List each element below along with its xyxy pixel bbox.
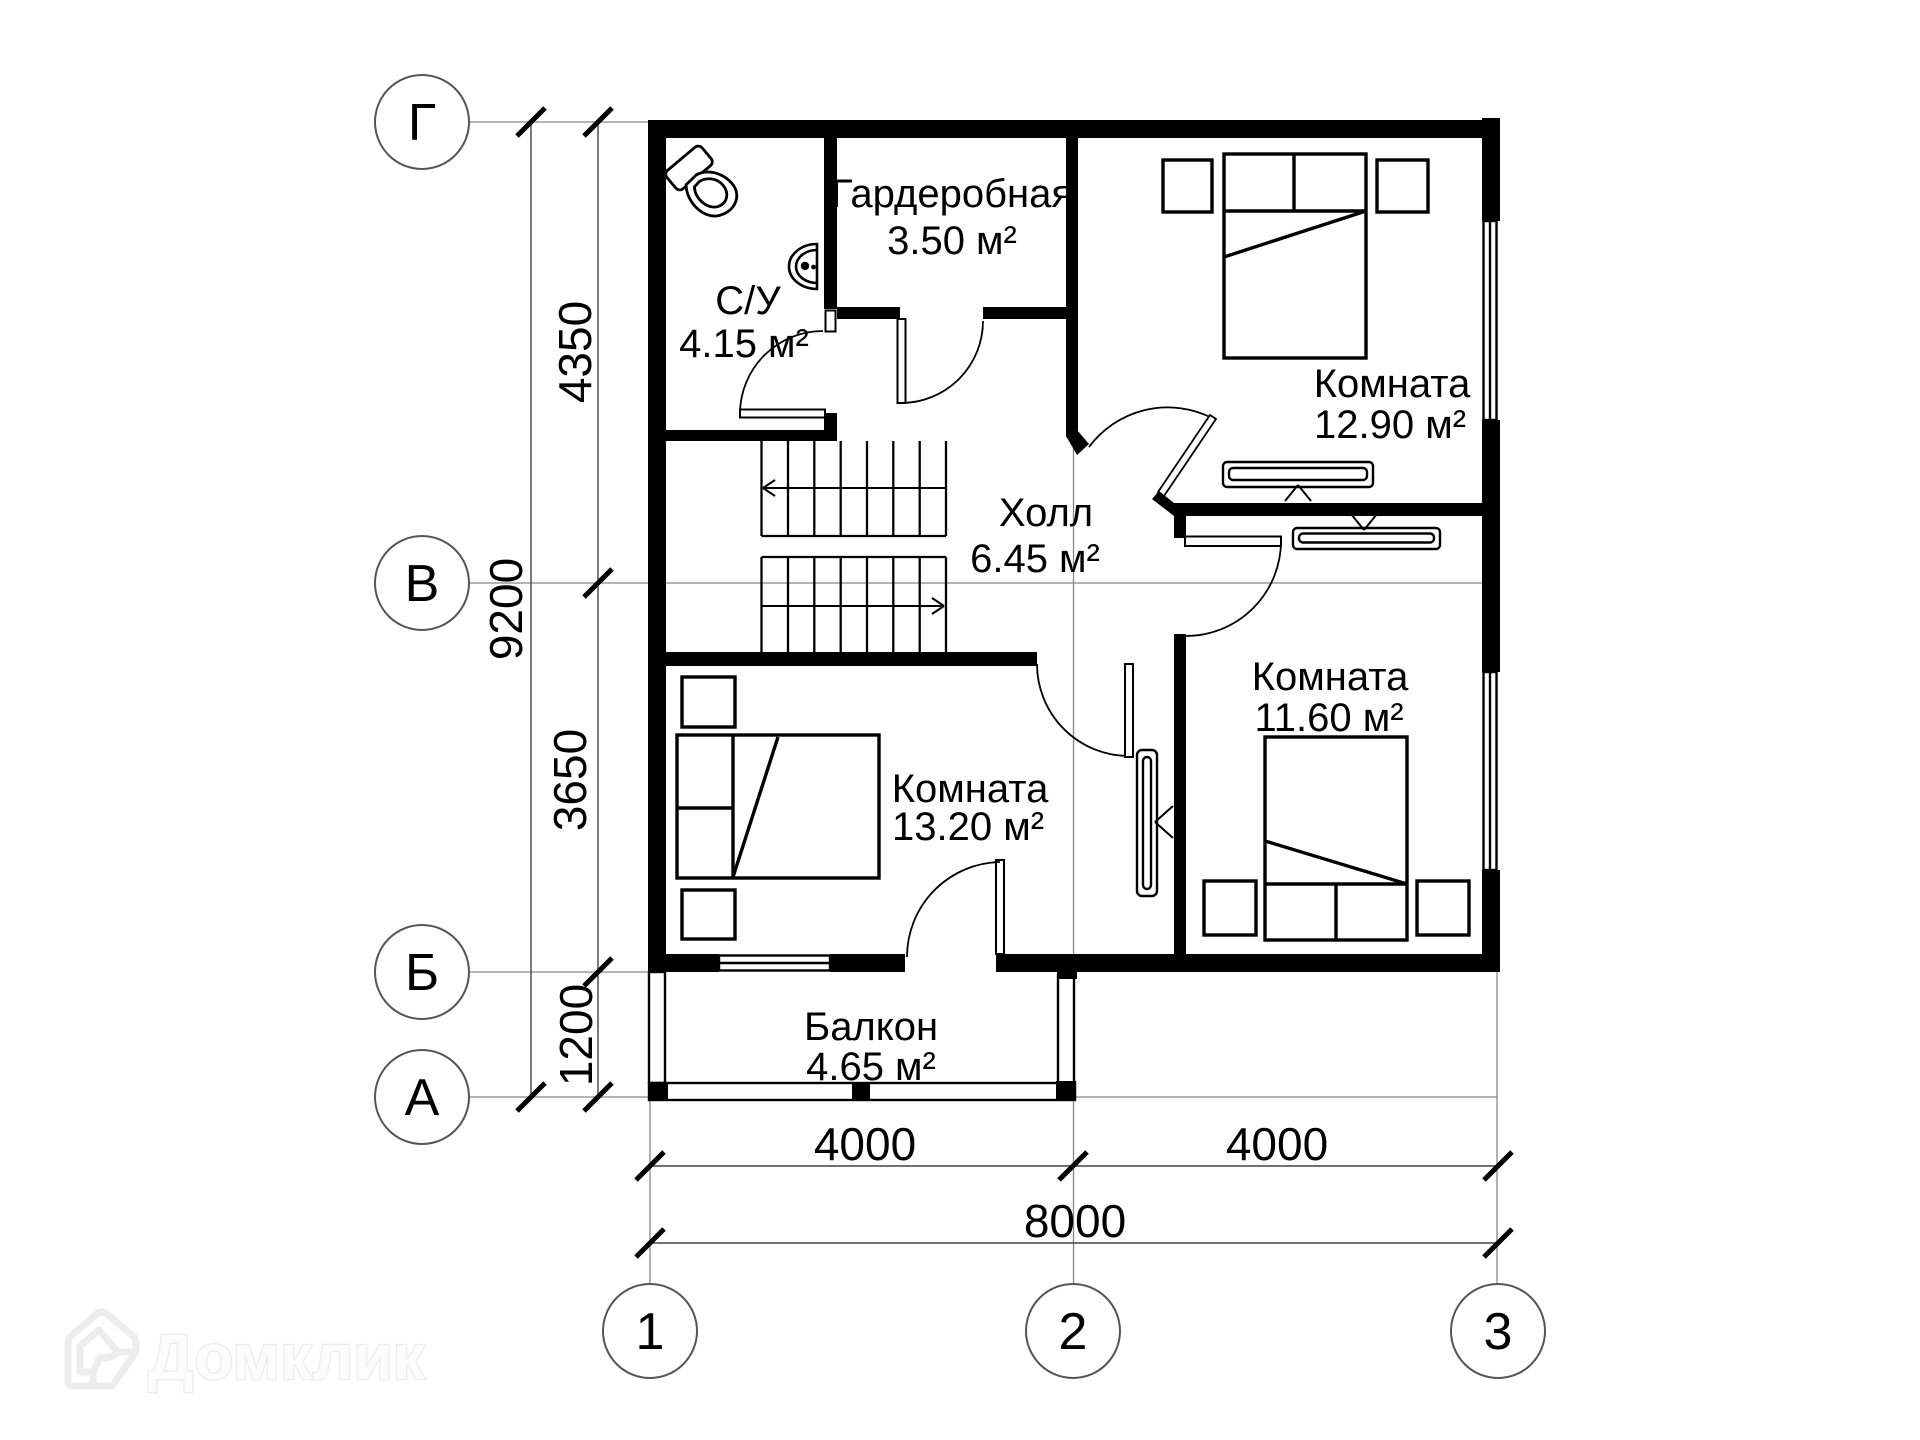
svg-text:С/У: С/У xyxy=(715,279,781,323)
svg-text:6.45 м²: 6.45 м² xyxy=(970,537,1100,581)
svg-text:12.90 м²: 12.90 м² xyxy=(1314,403,1466,447)
svg-text:9200: 9200 xyxy=(480,558,532,660)
svg-text:4000: 4000 xyxy=(814,1118,916,1170)
svg-text:2: 2 xyxy=(1059,1303,1088,1361)
svg-text:13.20 м²: 13.20 м² xyxy=(892,805,1044,849)
svg-text:3.50 м²: 3.50 м² xyxy=(887,219,1017,263)
svg-text:Комната: Комната xyxy=(1252,655,1409,699)
svg-text:Комната: Комната xyxy=(1314,362,1471,406)
svg-text:Холл: Холл xyxy=(999,491,1093,535)
svg-text:Домклик: Домклик xyxy=(148,1321,426,1393)
svg-text:4350: 4350 xyxy=(549,301,601,403)
svg-text:4.65 м²: 4.65 м² xyxy=(806,1045,936,1089)
svg-text:1200: 1200 xyxy=(550,984,602,1086)
svg-text:3650: 3650 xyxy=(544,729,596,831)
svg-text:4.15 м²: 4.15 м² xyxy=(679,322,809,366)
svg-text:Г: Г xyxy=(408,94,436,152)
svg-text:11.60 м²: 11.60 м² xyxy=(1254,696,1403,740)
svg-text:3: 3 xyxy=(1484,1303,1513,1361)
svg-text:Гардеробная: Гардеробная xyxy=(831,172,1073,216)
svg-text:В: В xyxy=(405,555,440,613)
svg-text:1: 1 xyxy=(636,1303,665,1361)
svg-text:8000: 8000 xyxy=(1024,1195,1126,1247)
svg-text:А: А xyxy=(405,1069,440,1127)
svg-text:4000: 4000 xyxy=(1226,1118,1328,1170)
svg-text:Б: Б xyxy=(405,944,439,1002)
svg-text:Балкон: Балкон xyxy=(804,1005,938,1049)
